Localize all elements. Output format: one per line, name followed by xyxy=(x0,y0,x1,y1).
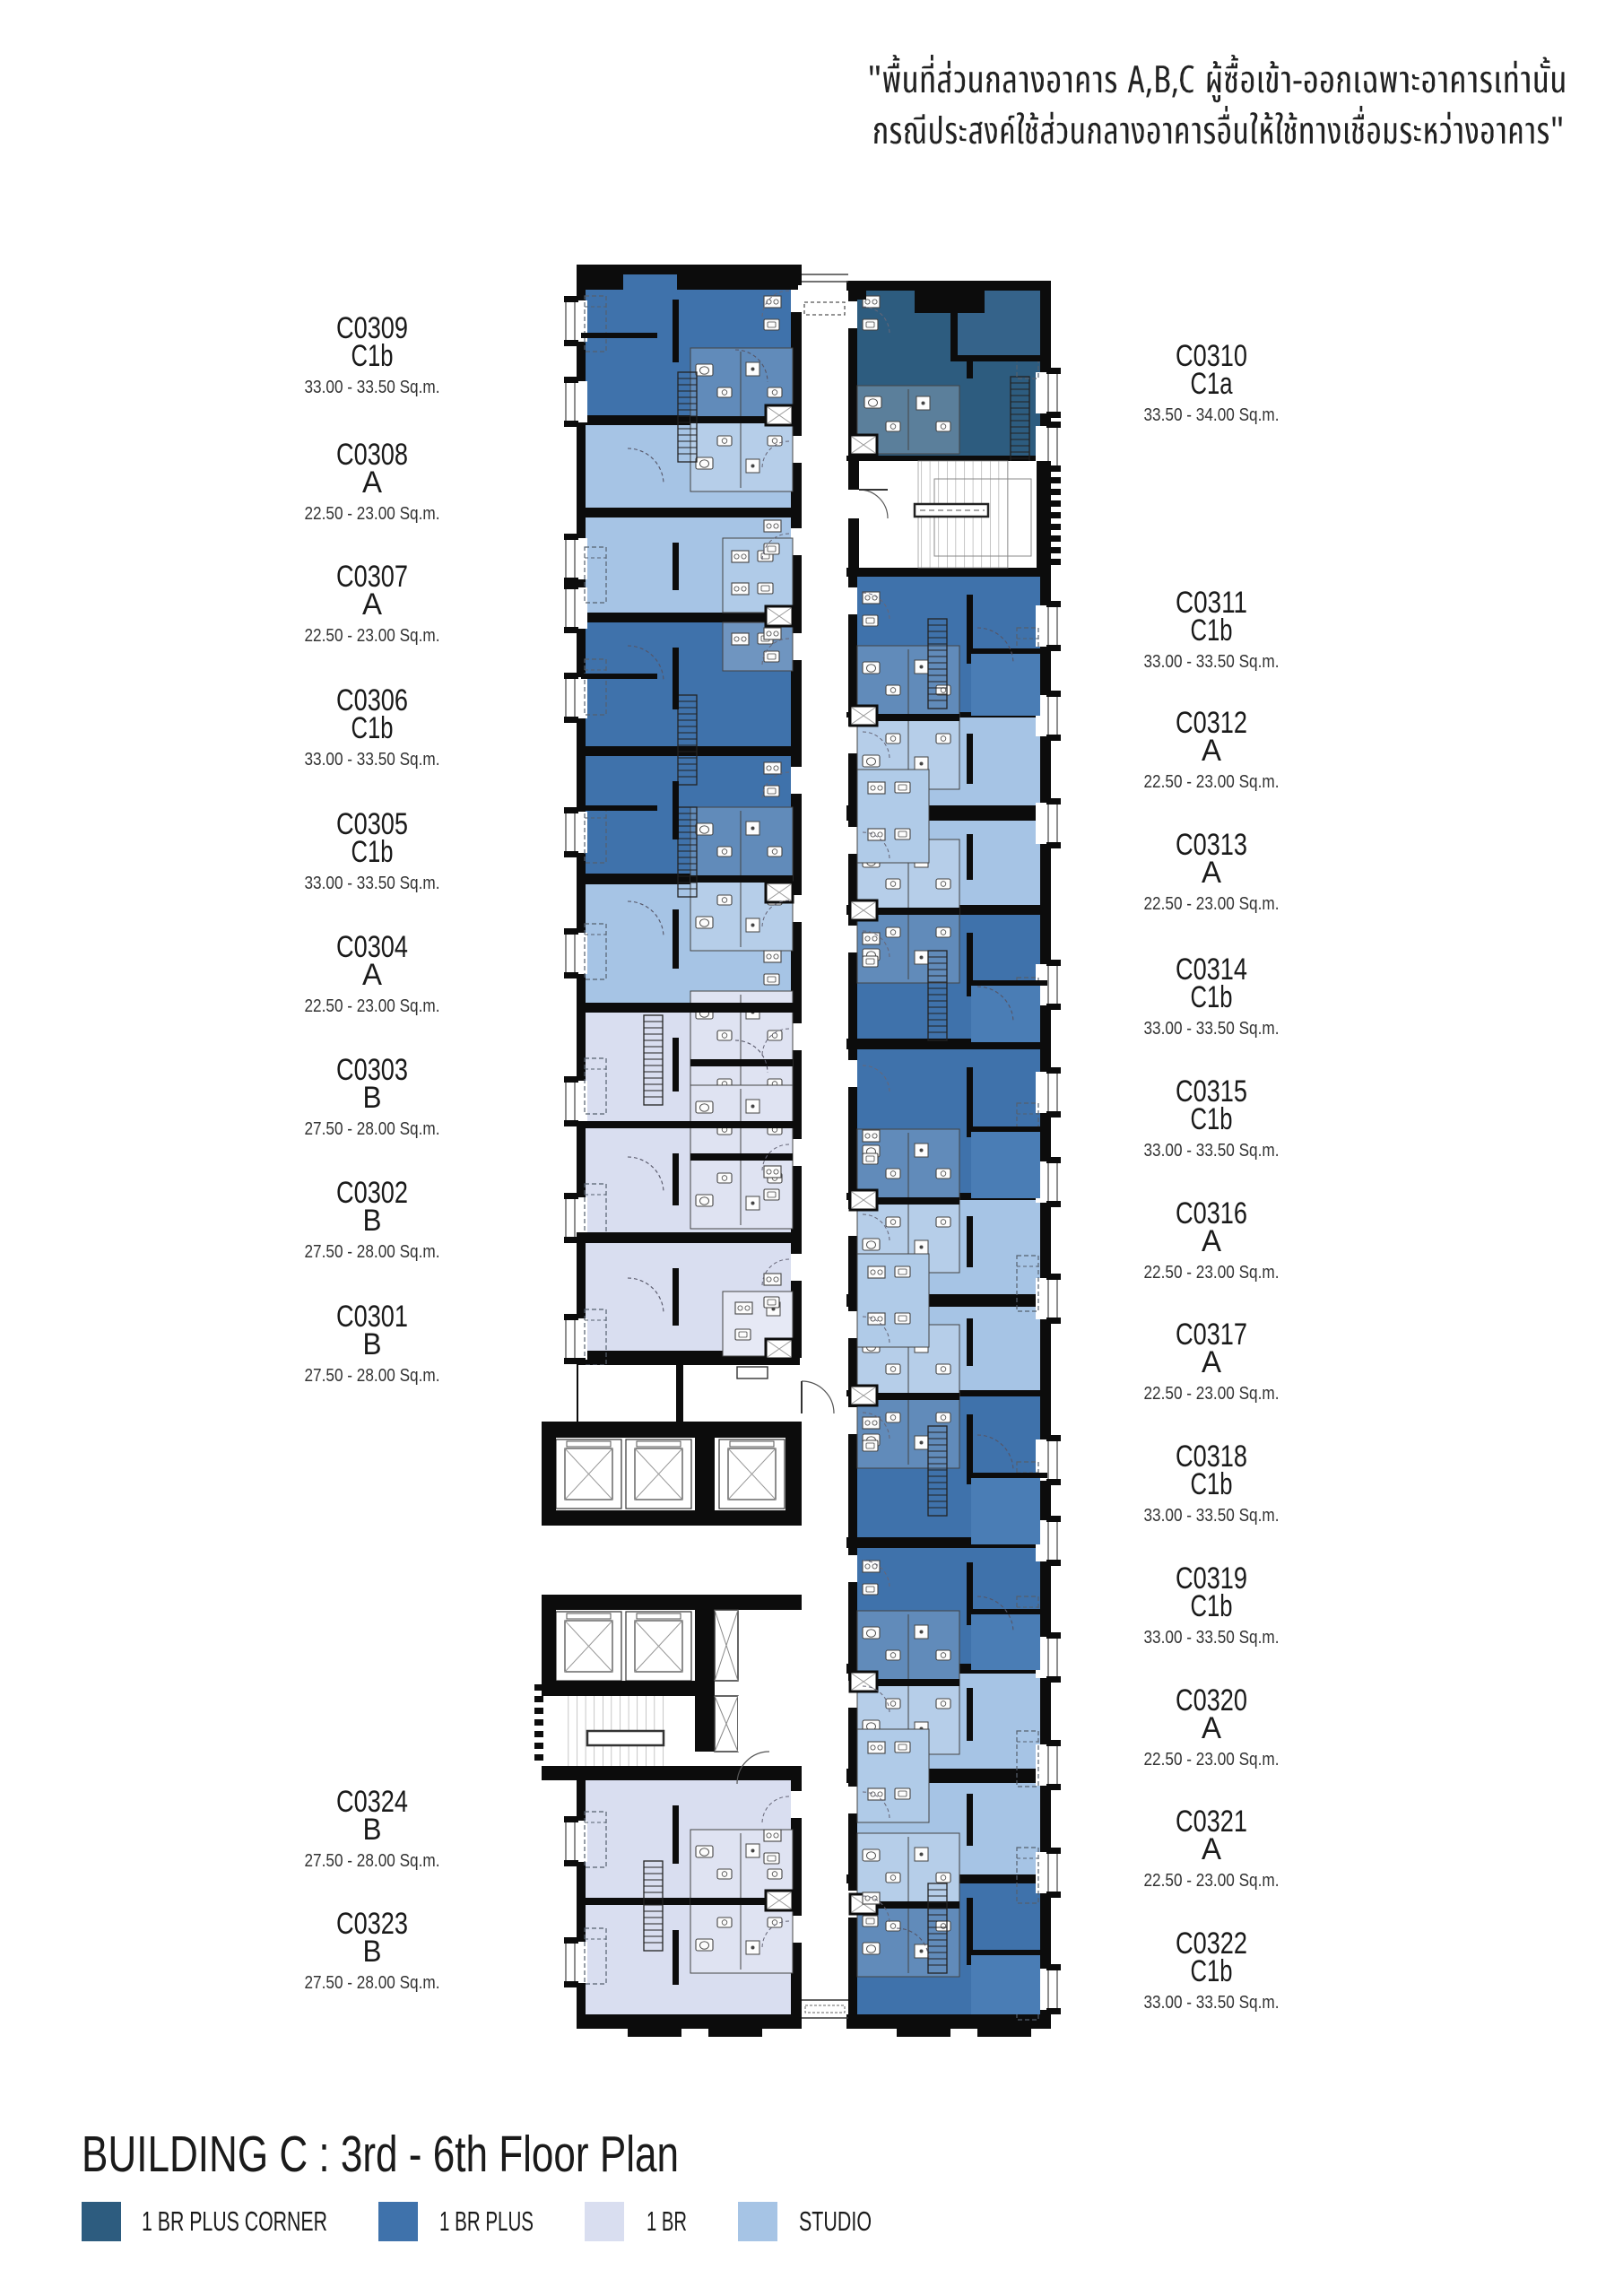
svg-text:27.50 - 28.00 Sq.m.: 27.50 - 28.00 Sq.m. xyxy=(305,1850,440,1871)
svg-text:33.00 - 33.50 Sq.m.: 33.00 - 33.50 Sq.m. xyxy=(1144,1992,1280,2013)
svg-text:33.00 - 33.50 Sq.m.: 33.00 - 33.50 Sq.m. xyxy=(305,377,440,397)
svg-text:22.50 - 23.00 Sq.m.: 22.50 - 23.00 Sq.m. xyxy=(305,996,440,1016)
svg-text:B: B xyxy=(363,1081,382,1115)
svg-text:33.00 - 33.50 Sq.m.: 33.00 - 33.50 Sq.m. xyxy=(305,749,440,770)
svg-text:A: A xyxy=(1202,1832,1221,1866)
svg-text:C1b: C1b xyxy=(352,835,394,869)
svg-text:B: B xyxy=(363,1813,382,1847)
svg-text:22.50 - 23.00 Sq.m.: 22.50 - 23.00 Sq.m. xyxy=(1144,1870,1280,1891)
svg-text:STUDIO: STUDIO xyxy=(799,2205,872,2237)
svg-text:33.00 - 33.50 Sq.m.: 33.00 - 33.50 Sq.m. xyxy=(1144,1505,1280,1526)
svg-text:33.00 - 33.50 Sq.m.: 33.00 - 33.50 Sq.m. xyxy=(1144,651,1280,672)
svg-text:C1b: C1b xyxy=(1191,1589,1233,1623)
svg-text:C1b: C1b xyxy=(1191,980,1233,1014)
svg-text:1 BR: 1 BR xyxy=(647,2205,687,2237)
svg-text:27.50 - 28.00 Sq.m.: 27.50 - 28.00 Sq.m. xyxy=(305,1365,440,1386)
svg-text:C1b: C1b xyxy=(1191,1467,1233,1501)
svg-text:A: A xyxy=(1202,734,1221,768)
svg-text:22.50 - 23.00 Sq.m.: 22.50 - 23.00 Sq.m. xyxy=(305,503,440,524)
svg-text:22.50 - 23.00 Sq.m.: 22.50 - 23.00 Sq.m. xyxy=(1144,1749,1280,1770)
svg-text:A: A xyxy=(1202,1224,1221,1258)
svg-text:A: A xyxy=(1202,856,1221,890)
svg-text:C1b: C1b xyxy=(1191,1102,1233,1136)
svg-text:33.50 - 34.00 Sq.m.: 33.50 - 34.00 Sq.m. xyxy=(1144,404,1280,425)
svg-text:A: A xyxy=(362,958,382,992)
svg-text:22.50 - 23.00 Sq.m.: 22.50 - 23.00 Sq.m. xyxy=(305,625,440,646)
svg-text:A: A xyxy=(1202,1711,1221,1745)
svg-text:1 BR PLUS: 1 BR PLUS xyxy=(439,2205,534,2237)
svg-text:C1a: C1a xyxy=(1191,367,1233,401)
svg-text:33.00 - 33.50 Sq.m.: 33.00 - 33.50 Sq.m. xyxy=(1144,1627,1280,1648)
svg-text:C1b: C1b xyxy=(1191,1954,1233,1988)
svg-text:27.50 - 28.00 Sq.m.: 27.50 - 28.00 Sq.m. xyxy=(305,1241,440,1262)
svg-text:B: B xyxy=(363,1327,382,1361)
svg-text:22.50 - 23.00 Sq.m.: 22.50 - 23.00 Sq.m. xyxy=(1144,771,1280,792)
svg-text:22.50 - 23.00 Sq.m.: 22.50 - 23.00 Sq.m. xyxy=(1144,893,1280,914)
svg-text:C1b: C1b xyxy=(1191,613,1233,648)
svg-text:1 BR PLUS CORNER: 1 BR PLUS CORNER xyxy=(142,2205,327,2237)
svg-text:C1b: C1b xyxy=(352,711,394,745)
svg-text:22.50 - 23.00 Sq.m.: 22.50 - 23.00 Sq.m. xyxy=(1144,1383,1280,1404)
svg-text:A: A xyxy=(362,587,382,622)
svg-text:BUILDING C : 3rd - 6th Floor P: BUILDING C : 3rd - 6th Floor Plan xyxy=(82,2126,679,2183)
svg-text:33.00 - 33.50 Sq.m.: 33.00 - 33.50 Sq.m. xyxy=(1144,1140,1280,1161)
svg-text:A: A xyxy=(362,465,382,500)
svg-text:33.00 - 33.50 Sq.m.: 33.00 - 33.50 Sq.m. xyxy=(305,873,440,893)
svg-text:22.50 - 23.00 Sq.m.: 22.50 - 23.00 Sq.m. xyxy=(1144,1262,1280,1283)
svg-text:B: B xyxy=(363,1204,382,1238)
svg-text:27.50 - 28.00 Sq.m.: 27.50 - 28.00 Sq.m. xyxy=(305,1118,440,1139)
svg-text:B: B xyxy=(363,1935,382,1969)
svg-text:27.50 - 28.00 Sq.m.: 27.50 - 28.00 Sq.m. xyxy=(305,1972,440,1993)
svg-text:A: A xyxy=(1202,1345,1221,1379)
svg-text:C1b: C1b xyxy=(352,339,394,373)
svg-text:33.00 - 33.50 Sq.m.: 33.00 - 33.50 Sq.m. xyxy=(1144,1018,1280,1039)
